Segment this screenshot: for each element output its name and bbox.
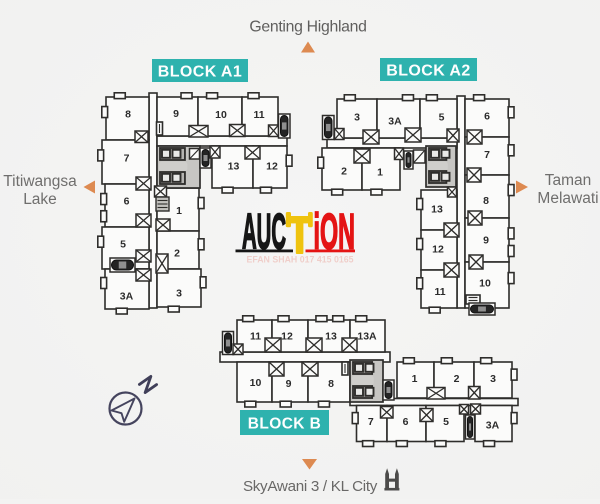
svg-text:2: 2 (454, 373, 460, 385)
svg-text:3: 3 (354, 112, 360, 124)
svg-text:12: 12 (266, 161, 278, 173)
svg-text:6: 6 (484, 111, 490, 123)
svg-text:Titiwangsa: Titiwangsa (3, 173, 77, 190)
svg-text:13: 13 (325, 331, 337, 343)
svg-text:7: 7 (124, 153, 130, 165)
svg-text:5: 5 (439, 112, 445, 124)
svg-text:13: 13 (431, 204, 443, 216)
svg-text:BLOCK A2: BLOCK A2 (386, 63, 470, 80)
svg-text:9: 9 (286, 378, 292, 390)
svg-text:2: 2 (341, 166, 347, 178)
svg-text:3: 3 (176, 288, 182, 300)
svg-text:10: 10 (250, 377, 262, 389)
svg-text:8: 8 (328, 378, 334, 390)
svg-text:12: 12 (432, 244, 444, 256)
svg-text:BLOCK B: BLOCK B (248, 416, 321, 433)
svg-text:EFAN SHAH 017 415 0165: EFAN SHAH 017 415 0165 (246, 255, 353, 265)
svg-text:13A: 13A (357, 331, 377, 343)
svg-text:11: 11 (250, 331, 261, 343)
svg-text:5: 5 (443, 416, 449, 428)
svg-text:Genting Highland: Genting Highland (249, 19, 366, 36)
svg-text:1: 1 (412, 373, 418, 385)
svg-text:2: 2 (174, 248, 180, 260)
svg-text:7: 7 (368, 416, 374, 428)
svg-text:9: 9 (173, 108, 179, 120)
svg-text:8: 8 (483, 195, 489, 207)
svg-text:12: 12 (281, 331, 293, 343)
svg-text:10: 10 (479, 278, 491, 290)
svg-text:11: 11 (434, 286, 445, 298)
svg-text:6: 6 (403, 416, 409, 428)
svg-text:10: 10 (215, 109, 227, 121)
svg-text:3A: 3A (388, 116, 402, 128)
svg-text:SkyAwani 3 / KL City: SkyAwani 3 / KL City (243, 478, 378, 495)
svg-text:13: 13 (228, 161, 240, 173)
svg-text:6: 6 (124, 196, 130, 208)
svg-text:3A: 3A (120, 291, 134, 303)
svg-text:8: 8 (125, 109, 131, 121)
svg-text:1: 1 (377, 167, 383, 179)
svg-text:5: 5 (120, 239, 126, 251)
svg-text:1: 1 (176, 205, 182, 217)
svg-text:11: 11 (253, 109, 264, 121)
svg-text:3: 3 (490, 373, 496, 385)
svg-text:Melawati: Melawati (537, 190, 598, 207)
svg-text:3A: 3A (486, 420, 500, 432)
svg-text:Taman: Taman (545, 172, 592, 189)
svg-text:7: 7 (484, 149, 490, 161)
svg-text:Lake: Lake (23, 191, 57, 208)
svg-text:BLOCK A1: BLOCK A1 (158, 64, 242, 81)
svg-text:9: 9 (483, 235, 489, 247)
